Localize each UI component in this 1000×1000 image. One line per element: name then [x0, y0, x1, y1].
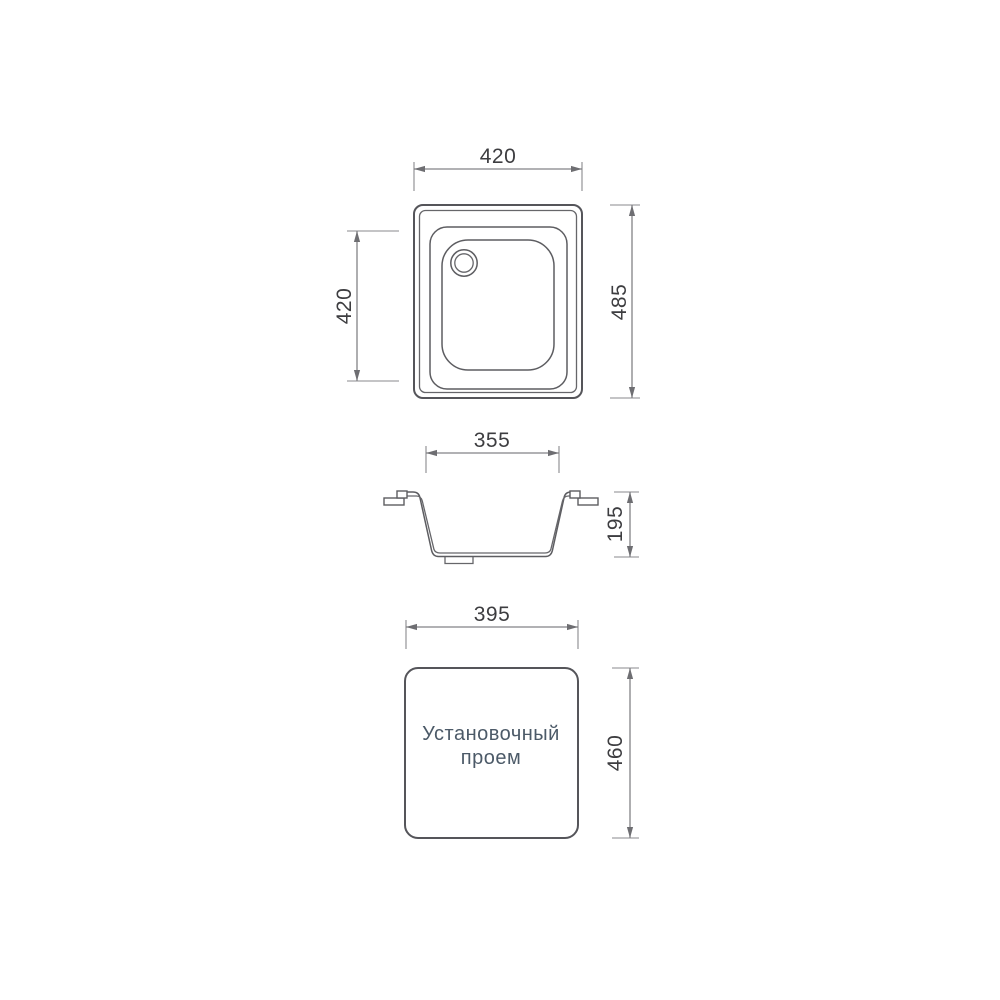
top-view: 420 420 485: [333, 145, 640, 398]
dim-top-width-label: 420: [480, 145, 517, 168]
dim-cutout-height-label: 460: [604, 735, 627, 772]
dim-section-width-label: 355: [474, 429, 511, 452]
right-mounting-clip: [578, 498, 598, 505]
dim-bowl-length: 420: [333, 231, 399, 381]
dim-bowl-length-label: 420: [333, 288, 356, 325]
cutout-label-line2: проем: [461, 747, 521, 769]
dim-section-depth-label: 195: [604, 506, 627, 543]
dim-cutout-width-label: 395: [474, 603, 511, 626]
drain-boss: [445, 557, 473, 564]
dim-section-width: 355: [426, 429, 559, 473]
dim-cutout-width: 395: [406, 603, 578, 649]
section-profile-outer: [407, 492, 571, 557]
section-profile-inner: [407, 496, 570, 553]
bowl-top-edge: [430, 227, 567, 389]
section-view: 355 195: [384, 429, 639, 564]
sink-dimension-drawing: 420 420 485: [0, 0, 1000, 1000]
dim-section-depth: 195: [604, 492, 639, 557]
cutout-label-line1: Установочный: [422, 723, 560, 745]
dim-overall-height-label: 485: [608, 284, 631, 321]
dim-overall-height: 485: [608, 205, 640, 398]
sink-rim-inner-line: [420, 211, 577, 393]
cutout-view: Установочный проем 395 460: [405, 603, 639, 838]
left-mounting-clip: [384, 498, 404, 505]
left-rim-tab: [397, 491, 407, 498]
dim-top-width: 420: [414, 145, 582, 191]
bowl-bottom-edge: [442, 240, 554, 370]
technical-drawing-canvas: 420 420 485: [0, 0, 1000, 1000]
right-rim-tab: [570, 491, 580, 498]
dim-cutout-height: 460: [604, 668, 639, 838]
sink-outer-edge: [414, 205, 582, 398]
drain-hole-inner: [455, 254, 473, 272]
